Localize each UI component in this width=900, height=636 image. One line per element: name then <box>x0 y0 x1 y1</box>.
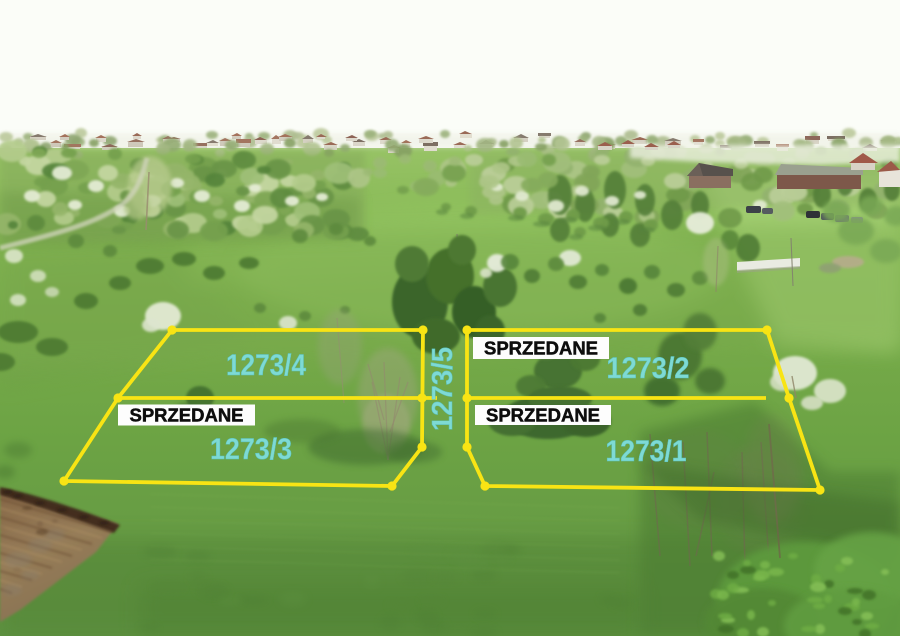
svg-text:SPRZEDANE: SPRZEDANE <box>484 338 598 359</box>
svg-text:1273/5: 1273/5 <box>427 347 459 431</box>
svg-text:SPRZEDANE: SPRZEDANE <box>486 405 600 426</box>
svg-text:1273/2: 1273/2 <box>607 352 690 385</box>
svg-text:1273/3: 1273/3 <box>210 433 292 466</box>
svg-text:1273/1: 1273/1 <box>606 435 687 468</box>
svg-text:SPRZEDANE: SPRZEDANE <box>130 405 244 426</box>
svg-text:1273/4: 1273/4 <box>226 349 306 382</box>
